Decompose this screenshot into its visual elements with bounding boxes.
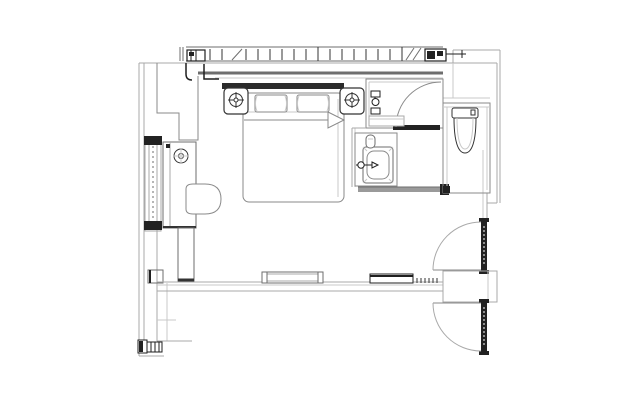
- window-cap-top: [144, 136, 162, 145]
- vanity-counter: [355, 133, 397, 186]
- bed: [222, 83, 364, 202]
- floor-plan: [0, 0, 640, 400]
- door-hinge: [479, 299, 489, 303]
- hook-detail: [186, 63, 192, 80]
- wall-lamp-right-hub: [350, 98, 354, 102]
- chair: [186, 184, 221, 214]
- door-hinge: [479, 218, 489, 222]
- stud-diagonal: [406, 48, 414, 60]
- door-swing-arc-lower: [433, 303, 481, 351]
- console-cabinet: [178, 228, 194, 281]
- pillow-right: [297, 95, 329, 112]
- wall-device-left-fill: [189, 52, 194, 56]
- door-swing-arc-upper: [433, 222, 481, 270]
- desk-area: [163, 142, 221, 281]
- shower-control: [372, 99, 379, 106]
- window-cap-bottom: [144, 221, 162, 230]
- corner-window-fill: [139, 341, 143, 352]
- bottom-wall: [157, 272, 443, 291]
- bathroom: [352, 79, 490, 195]
- bath-bottom-wall: [358, 187, 444, 192]
- floor-plan-canvas: [0, 0, 640, 400]
- shower-valve: [371, 91, 380, 97]
- shower-valve: [371, 108, 380, 114]
- pillow-left: [255, 95, 287, 112]
- stud-diagonal: [413, 48, 421, 60]
- door-hinge: [479, 351, 489, 355]
- stud-diagonal: [232, 49, 242, 60]
- faucet-handle: [358, 162, 364, 168]
- wall-pier-step: [157, 63, 198, 140]
- shower-bench: [369, 116, 404, 126]
- wall-lamp-left-hub: [234, 98, 238, 102]
- wall-device-right-fill: [427, 51, 435, 59]
- desk-socket: [166, 144, 170, 148]
- entry-doors: [433, 218, 497, 355]
- entry-niche: [443, 271, 497, 302]
- soap-dispenser: [366, 135, 375, 148]
- wall-device-right-fill: [437, 51, 443, 56]
- toilet-room-cap: [443, 186, 450, 193]
